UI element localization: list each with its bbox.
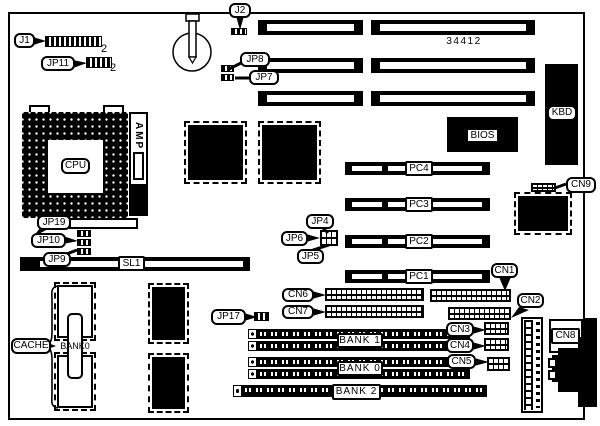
isa-slot-key [380, 24, 526, 31]
bios-label: BIOS [466, 128, 499, 143]
jp4-jp5-jp6-block [320, 230, 338, 246]
callout-cache: CACHE [11, 338, 51, 354]
chipset-qfp [188, 125, 243, 180]
din-connector-part [558, 348, 578, 392]
jp10-jumper [77, 248, 91, 255]
callout-jp17: JP17 [211, 309, 246, 325]
cn2-connector [448, 307, 511, 320]
isa-slot-key [267, 95, 354, 102]
callout-jp11: JP11 [41, 56, 75, 71]
din-pin [548, 370, 557, 380]
cn4-connector [484, 338, 509, 351]
pci-key [352, 274, 382, 279]
sl1-label: SL1 [118, 256, 145, 271]
cn9-header [531, 183, 556, 192]
board-part-number: 34412 [440, 36, 488, 47]
pci-slot: PC1 [345, 270, 490, 283]
pci-key [352, 239, 382, 244]
slot-label-pc4: PC4 [405, 161, 433, 176]
slot-label-pc3: PC3 [405, 197, 433, 212]
pci-slot: PC2 [345, 235, 490, 248]
callout-cn1: CN1 [491, 263, 518, 278]
isa-slot-segment [258, 20, 363, 35]
jp8-jumper [221, 65, 234, 72]
cache-tag-qfp [152, 357, 185, 409]
isa-slot-segment [371, 20, 535, 35]
kbd-label: KBD [547, 105, 577, 121]
slot-label-pc1: PC1 [405, 269, 433, 284]
pci-key [388, 202, 482, 207]
pci-key [352, 166, 382, 171]
power-connector [521, 317, 543, 413]
callout-j2: J2 [229, 3, 251, 18]
jp7-jumper [221, 74, 234, 81]
jp11-header [86, 57, 112, 68]
cpu-label: CPU [61, 158, 90, 174]
isa-slot-key [380, 95, 526, 102]
bank1-label: BANK 1 [337, 333, 383, 348]
isa-slot-key [267, 62, 354, 69]
isa-slot-segment [371, 91, 535, 106]
callout-cn7: CN7 [282, 305, 314, 319]
callout-jp4: JP4 [306, 214, 334, 229]
callout-cn6: CN6 [282, 288, 314, 302]
pci-key [388, 274, 482, 279]
j1-pin1-marker: 2 [101, 43, 107, 55]
cache-tag-qfp [152, 287, 185, 340]
cache-bank-label: BANK0 [67, 313, 83, 379]
slot-label-pc2: PC2 [405, 234, 433, 249]
callout-cn9: CN9 [566, 177, 596, 193]
callout-cn4: CN4 [446, 338, 474, 353]
din-pin [548, 358, 557, 368]
pci-key [388, 166, 482, 171]
bank0-label: BANK 0 [337, 361, 383, 376]
amp-label: AMP [130, 115, 147, 157]
callout-cn3: CN3 [446, 322, 474, 337]
callout-cn8: CN8 [551, 328, 580, 344]
cn1-connector [430, 289, 511, 302]
callout-jp7: JP7 [249, 70, 279, 85]
bank2-label: BANK 2 [332, 384, 381, 400]
cn7-connector [325, 305, 424, 318]
chipset-qfp [262, 125, 317, 180]
j2-header [231, 28, 247, 35]
callout-cn2: CN2 [517, 293, 544, 308]
cn5-connector [487, 357, 510, 371]
isa-slot-key [380, 62, 526, 69]
isa-slot-key [267, 24, 354, 31]
motherboard-diagram: 34412 CPU AMP BIOS KBD PC4 PC3 PC2 PC1 [0, 0, 600, 426]
jp10-jumper [77, 230, 91, 237]
callout-j1: J1 [14, 33, 35, 48]
isa-slot-segment [371, 58, 535, 73]
jp10-jumper [77, 239, 91, 246]
pci-slot: PC4 [345, 162, 490, 175]
callout-jp8: JP8 [240, 52, 270, 67]
jp19-header [69, 218, 138, 229]
pci-slot: PC3 [345, 198, 490, 211]
callout-jp5: JP5 [297, 249, 324, 264]
callout-cn5: CN5 [447, 354, 476, 369]
callout-jp6: JP6 [281, 231, 308, 246]
din-connector-part [578, 337, 597, 407]
cn6-connector [325, 288, 424, 301]
isa-slot-segment [258, 91, 363, 106]
callout-jp10: JP10 [31, 233, 66, 248]
jp11-pin1-marker: 2 [110, 62, 116, 74]
pci-key [388, 239, 482, 244]
amp-component [133, 152, 144, 180]
callout-jp9: JP9 [43, 252, 71, 267]
j1-header [45, 36, 102, 47]
callout-jp19: JP19 [37, 215, 71, 230]
pci-key [352, 202, 382, 207]
amp-component-dark [131, 184, 146, 214]
jp17-header [254, 312, 269, 321]
cn3-connector [484, 322, 509, 335]
io-controller-qfp [518, 196, 568, 231]
